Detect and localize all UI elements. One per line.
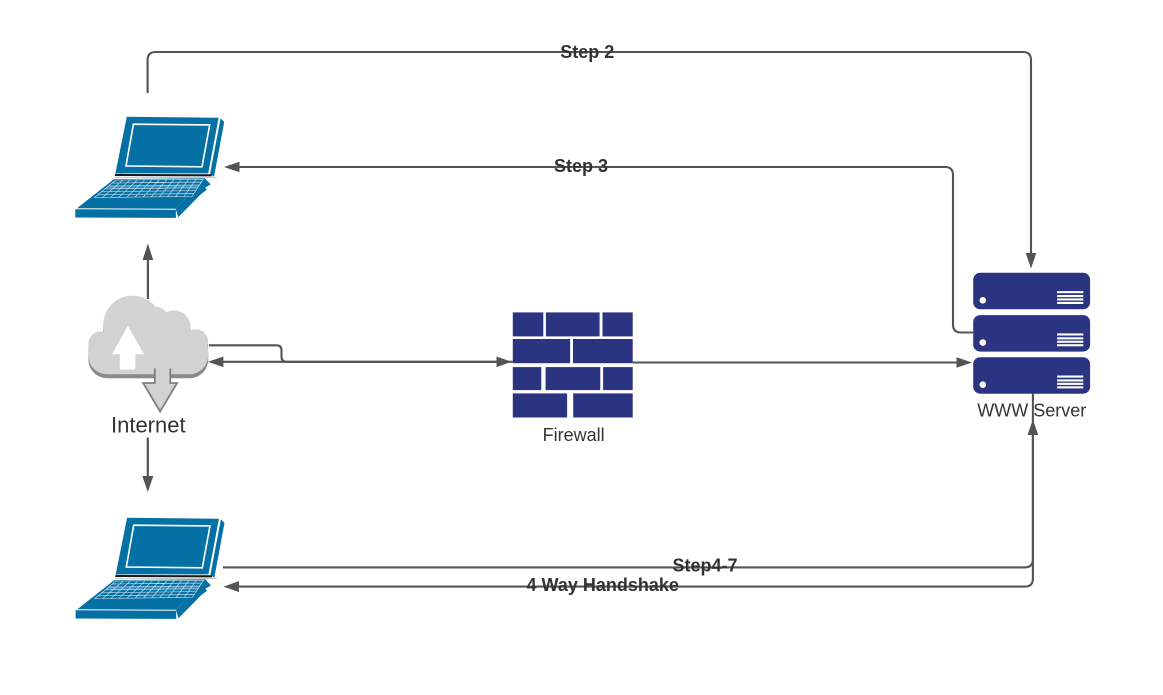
svg-text:WWW Server: WWW Server (977, 401, 1086, 421)
svg-text:Firewall: Firewall (543, 425, 605, 445)
svg-text:Step4-7: Step4-7 (672, 556, 737, 576)
svg-text:Internet: Internet (111, 412, 186, 437)
svg-text:Step 2: Step 2 (560, 42, 614, 62)
svg-text:Step 3: Step 3 (554, 156, 608, 176)
svg-text:4 Way Handshake: 4 Way Handshake (526, 575, 678, 595)
